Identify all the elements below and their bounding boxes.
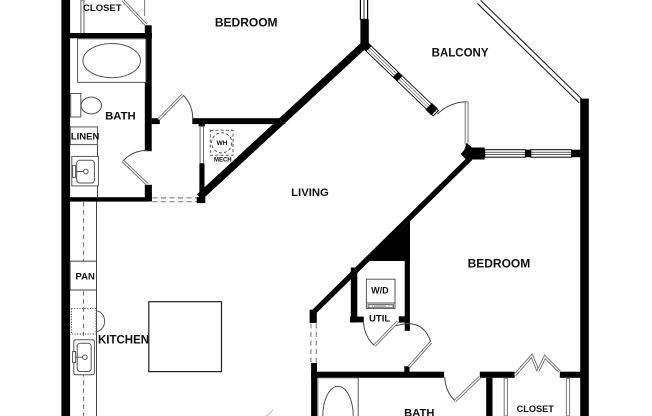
- svg-text:LINEN: LINEN: [71, 132, 100, 143]
- svg-text:CLOSET: CLOSET: [83, 3, 122, 14]
- svg-text:LIVING: LIVING: [291, 187, 329, 199]
- svg-text:BATH: BATH: [105, 111, 136, 123]
- svg-text:PAN: PAN: [76, 272, 95, 283]
- svg-text:BEDROOM: BEDROOM: [468, 257, 531, 271]
- svg-text:KITCHEN: KITCHEN: [98, 335, 149, 347]
- svg-text:MECH: MECH: [214, 157, 232, 163]
- svg-text:BEDROOM: BEDROOM: [215, 16, 278, 30]
- svg-text:WH: WH: [217, 140, 228, 147]
- svg-text:BALCONY: BALCONY: [432, 47, 489, 59]
- svg-text:CLOSET: CLOSET: [517, 404, 555, 414]
- svg-text:UTIL: UTIL: [369, 314, 390, 325]
- svg-text:W/D: W/D: [371, 286, 389, 296]
- svg-text:BATH: BATH: [404, 407, 434, 416]
